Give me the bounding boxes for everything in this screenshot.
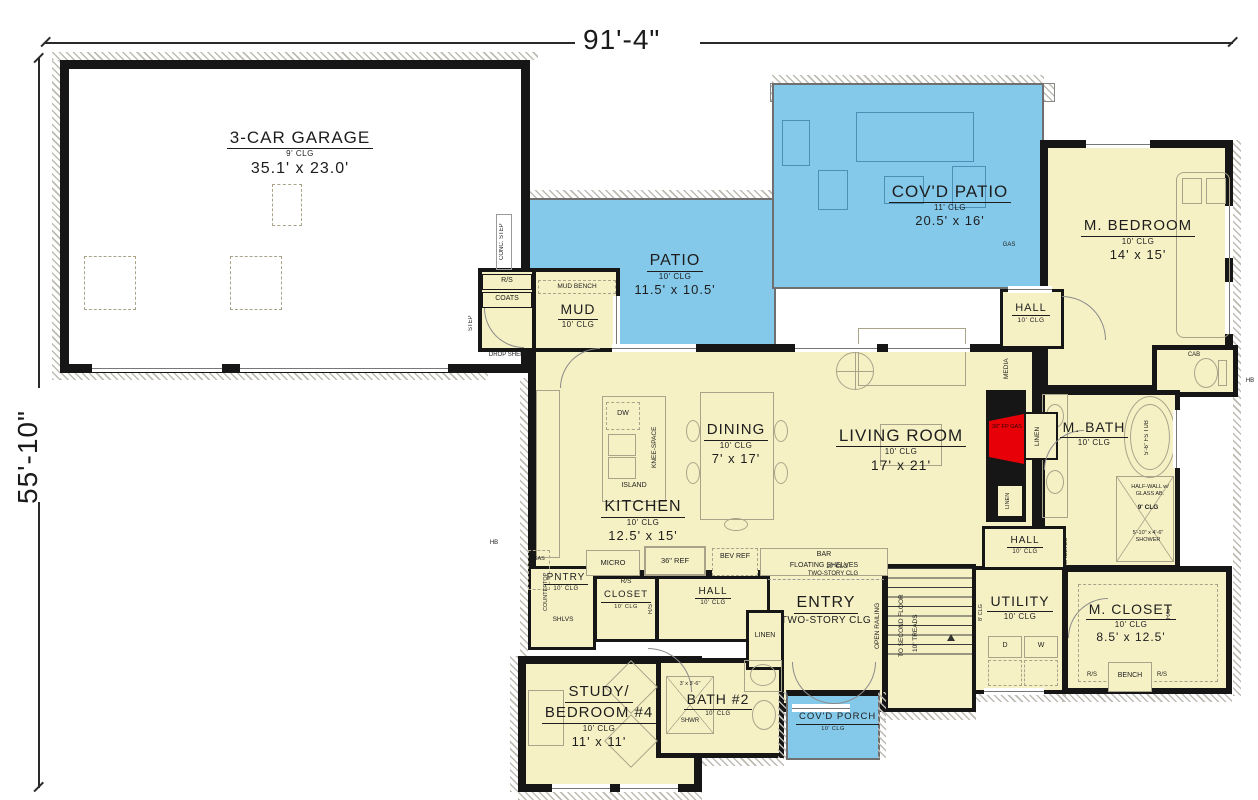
ref-label: 36" REF bbox=[644, 556, 706, 565]
garage-door-opening bbox=[92, 364, 222, 372]
fireplace bbox=[989, 414, 1024, 464]
garage-label: 3-CAR GARAGE 9' CLG 35.1' x 23.0' bbox=[205, 128, 395, 178]
utility-name: UTILITY bbox=[987, 594, 1052, 612]
study-clg: 10' CLG bbox=[534, 725, 664, 734]
open-railing-label: OPEN RAILING bbox=[874, 598, 881, 654]
dim-line-top-left bbox=[45, 42, 575, 44]
dryer-label: D bbox=[988, 642, 1022, 649]
bath-window bbox=[1173, 410, 1180, 468]
knee-space-label: KNEE-SPACE bbox=[651, 414, 658, 480]
patio-sliding-door bbox=[612, 344, 696, 352]
closet-rs-label: R/S bbox=[606, 578, 646, 585]
tub-label: 5'-6" FS TUB bbox=[1144, 408, 1150, 468]
patio-dims: 11.5' x 10.5' bbox=[608, 283, 742, 298]
garage-name: 3-CAR GARAGE bbox=[227, 128, 373, 149]
patio-name: PATIO bbox=[647, 252, 704, 272]
shelves-label: SHELVES bbox=[1063, 532, 1069, 570]
hall-center-clg: 10' CLG bbox=[686, 600, 740, 607]
garage-storage-symbol bbox=[230, 256, 282, 310]
island-label: ISLAND bbox=[608, 482, 660, 489]
garage-dims: 35.1' x 23.0' bbox=[205, 160, 395, 178]
sectional-sofa-symbol bbox=[858, 328, 966, 386]
kitchen-label: KITCHEN 10' CLG 12.5' x 15' bbox=[578, 498, 708, 543]
covd-patio-label: COV'D PATIO 11' CLG 20.5' x 16' bbox=[855, 182, 1045, 229]
living-clg: 10' CLG bbox=[826, 448, 976, 457]
dw-label: DW bbox=[608, 410, 638, 417]
hall-mid-clg: 10' CLG bbox=[1000, 549, 1050, 556]
linen-label-b: LINEN bbox=[1005, 487, 1011, 515]
study-name1: STUDY/ bbox=[565, 684, 632, 703]
sink-symbol bbox=[750, 664, 776, 686]
hatch-strip bbox=[520, 378, 528, 658]
dim-line-left-bottom bbox=[38, 502, 40, 788]
dining-chair-symbol bbox=[724, 518, 748, 531]
hatch-strip bbox=[52, 52, 538, 60]
hall-center-label: HALL 10' CLG bbox=[686, 586, 740, 607]
bev-ref-label: BEV REF bbox=[712, 552, 758, 561]
garage-storage-symbol bbox=[84, 256, 136, 310]
floor-plan-canvas: 91'-4" 55'-10" 36" FP GAS LINE bbox=[0, 0, 1258, 800]
hatch-strip bbox=[884, 712, 976, 720]
closet-rs-vert-label: R/S bbox=[648, 594, 654, 624]
rs-label: R/S bbox=[482, 277, 532, 284]
mud-bench-label: MUD BENCH bbox=[538, 283, 616, 290]
m-closet-dims: 8.5' x 12.5' bbox=[1076, 631, 1186, 644]
pillow-symbol bbox=[1206, 178, 1226, 204]
garage-clg: 9' CLG bbox=[205, 150, 395, 159]
shower-dims-label: 5'-10" x 4'-6" SHOWER bbox=[1122, 530, 1174, 544]
entry-name: ENTRY bbox=[794, 594, 859, 614]
gas-label-patio: GAS bbox=[998, 242, 1020, 248]
entry-clg: TWO-STORY CLG bbox=[778, 615, 874, 626]
to-second-floor-label: TO SECOND FLOOR bbox=[898, 588, 905, 664]
bath2-label: BATH #2 10' CLG bbox=[668, 692, 768, 717]
closet-label: CLOSET 10' CLG bbox=[600, 590, 652, 610]
kitchen-sink-symbol bbox=[608, 457, 636, 479]
garage-door-opening bbox=[240, 364, 448, 372]
tub-symbol-inner bbox=[1130, 404, 1170, 470]
patio-chair-symbol bbox=[782, 120, 810, 166]
hall-upper-label: HALL 10' CLG bbox=[1002, 302, 1060, 325]
patio-sliding-door bbox=[795, 344, 877, 352]
ceiling-break-line bbox=[768, 579, 884, 580]
bedroom-window bbox=[1225, 282, 1233, 334]
closet-name: CLOSET bbox=[601, 590, 651, 603]
m-bath-name: M. BATH bbox=[1060, 420, 1129, 438]
media-label: MEDIA bbox=[1003, 352, 1010, 386]
linen-label-a: LINEN bbox=[1034, 418, 1041, 454]
study-dims: 11' x 11' bbox=[534, 735, 664, 750]
hatch-strip bbox=[1233, 140, 1241, 696]
m-bedroom-label: M. BEDROOM 10' CLG 14' x 15' bbox=[1068, 218, 1208, 262]
attic-access-symbol bbox=[272, 184, 302, 226]
gas-label-range: GAS bbox=[528, 556, 550, 562]
mcloset-rs-bottom-b: R/S bbox=[1148, 672, 1176, 678]
hatch-strip bbox=[772, 75, 1044, 83]
covd-porch-clg: 10' CLG bbox=[796, 726, 870, 732]
kitchen-clg: 10' CLG bbox=[578, 519, 708, 528]
utility-window bbox=[984, 688, 1044, 695]
step-label: STEP bbox=[468, 308, 474, 338]
mcloset-rs-right: R/S bbox=[1166, 600, 1172, 628]
dining-name: DINING bbox=[704, 422, 769, 441]
break-bottom-label: TWO-STORY CLG bbox=[798, 571, 868, 577]
m-bedroom-clg: 10' CLG bbox=[1068, 238, 1208, 247]
toilet-symbol bbox=[1194, 358, 1218, 388]
conc-step-label: CONC. STEP bbox=[499, 218, 505, 266]
pillow-symbol bbox=[1182, 178, 1202, 204]
patio-sliding-door bbox=[888, 344, 970, 352]
bath2-name: BATH #2 bbox=[684, 692, 753, 710]
shwr2-label: SHWR bbox=[672, 718, 708, 724]
kitchen-sink-symbol bbox=[608, 434, 636, 456]
hall-center-name: HALL bbox=[695, 586, 730, 599]
hall-patio-door bbox=[1008, 286, 1052, 293]
dim-line-left-top bbox=[38, 58, 40, 388]
hall-upper-name: HALL bbox=[1012, 302, 1050, 316]
shlvs-label: SHLVS bbox=[546, 616, 580, 623]
study-window bbox=[620, 784, 678, 792]
covd-patio-clg: 11' CLG bbox=[855, 204, 1045, 213]
patio-sofa-symbol bbox=[856, 112, 974, 162]
living-dims: 17' x 21' bbox=[826, 458, 976, 474]
mud-label: MUD 10' CLG bbox=[542, 302, 614, 330]
study-window bbox=[552, 784, 610, 792]
study-name2: BEDROOM #4 bbox=[542, 705, 656, 724]
fireplace-label: 36" FP GAS bbox=[992, 424, 1022, 431]
treads-label: 10" TREADS bbox=[912, 602, 919, 664]
micro-label: MICRO bbox=[586, 558, 640, 567]
overall-height-dimension: 55'-10" bbox=[12, 388, 44, 504]
hatch-strip bbox=[972, 694, 1066, 702]
utility-label: UTILITY 10' CLG bbox=[982, 594, 1058, 622]
bedroom-window bbox=[1225, 206, 1233, 258]
study-label: STUDY/ BEDROOM #4 10' CLG 11' x 11' bbox=[534, 684, 664, 749]
toilet-tank-symbol bbox=[1218, 360, 1227, 386]
kitchen-dims: 12.5' x 15' bbox=[578, 529, 708, 544]
shower-clg-label: 9' CLG bbox=[1130, 504, 1166, 511]
shwr2-dims-label: 3' x 3'-6" bbox=[668, 681, 712, 687]
hatch-strip bbox=[60, 372, 488, 380]
entry-label: ENTRY TWO-STORY CLG bbox=[778, 594, 874, 626]
patio-clg: 10' CLG bbox=[608, 273, 742, 282]
hatch-strip bbox=[510, 656, 518, 792]
linen2-label: LINEN bbox=[748, 632, 782, 639]
bench-label: BENCH bbox=[1108, 672, 1152, 679]
hall-mid-label: HALL 10' CLG bbox=[1000, 535, 1050, 556]
pntry-name: PNTRY bbox=[544, 572, 589, 585]
dining-label: DINING 10' CLG 7' x 17' bbox=[686, 422, 786, 466]
drop-shelf-label: DROP SHELF bbox=[482, 352, 534, 358]
clg8-label: 8' CLG bbox=[978, 598, 984, 628]
m-closet-name: M. CLOSET bbox=[1086, 602, 1176, 620]
dining-dims: 7' x 17' bbox=[686, 452, 786, 467]
mud-clg: 10' CLG bbox=[542, 321, 614, 330]
covd-patio-dims: 20.5' x 16' bbox=[855, 214, 1045, 229]
overall-width-dimension: 91'-4" bbox=[583, 24, 660, 56]
hatch-strip bbox=[518, 792, 702, 800]
m-bath-label: M. BATH 10' CLG bbox=[1052, 420, 1136, 448]
m-bath-clg: 10' CLG bbox=[1052, 439, 1136, 448]
hatch-strip bbox=[52, 60, 60, 380]
living-name: LIVING ROOM bbox=[836, 426, 966, 447]
hatch-strip bbox=[1062, 694, 1232, 702]
kitchen-counter-symbol bbox=[536, 390, 560, 558]
covd-porch-name: COV'D PORCH bbox=[796, 712, 879, 725]
hall-upper-clg: 10' CLG bbox=[1002, 317, 1060, 324]
bedroom-window bbox=[1086, 140, 1150, 148]
hb-label: HB bbox=[1242, 378, 1258, 384]
kitchen-name: KITCHEN bbox=[601, 498, 684, 518]
bar-label: BAR bbox=[760, 551, 888, 558]
mud-name: MUD bbox=[558, 302, 599, 320]
hatch-strip bbox=[528, 190, 776, 198]
hb-label: HB bbox=[486, 540, 502, 546]
utility-clg: 10' CLG bbox=[982, 613, 1058, 622]
break-top-label: 10' CLG bbox=[806, 564, 868, 570]
cab-label: CAB bbox=[1184, 352, 1204, 358]
patio-label: PATIO 10' CLG 11.5' x 10.5' bbox=[608, 252, 742, 297]
closet-clg: 10' CLG bbox=[600, 604, 652, 610]
hall-mid-name: HALL bbox=[1007, 535, 1042, 548]
covd-patio-name: COV'D PATIO bbox=[889, 182, 1012, 203]
covd-porch-label: COV'D PORCH 10' CLG bbox=[796, 712, 870, 732]
porch-column bbox=[778, 692, 786, 758]
m-bedroom-dims: 14' x 15' bbox=[1068, 248, 1208, 263]
mcloset-rs-bottom-a: R/S bbox=[1078, 672, 1106, 678]
sink-symbol bbox=[1046, 470, 1064, 494]
machine-symbol bbox=[988, 660, 1022, 686]
porch-column bbox=[878, 692, 886, 758]
bath2-clg: 10' CLG bbox=[668, 711, 768, 718]
mcloset-rs-left: R/S bbox=[1063, 578, 1069, 606]
coats-label: COATS bbox=[482, 295, 532, 302]
stair-arrow-head bbox=[947, 634, 955, 641]
countertop-label: COUNTERTOP bbox=[543, 568, 549, 616]
living-label: LIVING ROOM 10' CLG 17' x 21' bbox=[826, 426, 976, 474]
dining-clg: 10' CLG bbox=[686, 442, 786, 451]
ceiling-fan-symbol bbox=[836, 352, 874, 390]
mud-patio-door bbox=[613, 296, 620, 344]
washer-label: W bbox=[1024, 642, 1058, 649]
dim-line-top-right bbox=[700, 42, 1233, 44]
half-wall-label: HALF-WALL w/ GLASS AB. bbox=[1124, 484, 1176, 498]
machine-symbol bbox=[1024, 660, 1058, 686]
m-bedroom-name: M. BEDROOM bbox=[1081, 218, 1195, 237]
patio-chair-symbol bbox=[818, 170, 848, 210]
